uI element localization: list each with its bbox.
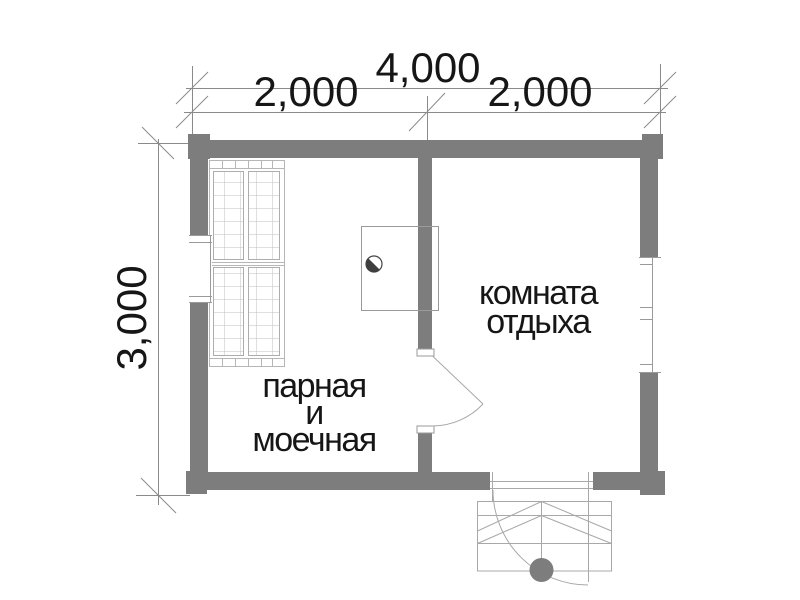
log-corner-bottom-right <box>640 471 665 495</box>
interior-door-swing-arc <box>433 404 484 426</box>
bench-panel <box>214 172 244 260</box>
log-corner-top-right <box>642 134 663 159</box>
bench-panel <box>214 268 244 356</box>
stove-marker-icon <box>366 256 382 272</box>
window-left <box>189 235 212 303</box>
dim-overall-width: 4,000 <box>375 44 480 91</box>
window-right <box>639 257 661 373</box>
bench-slats <box>210 161 285 367</box>
outer-wall-bottom-left <box>190 472 490 490</box>
door-jamb-bottom <box>417 426 434 433</box>
floor-plan-canvas: 4,000 2,000 2,000 3,000 <box>0 0 800 600</box>
interior-wall-upper <box>418 158 432 349</box>
door-jamb-top <box>417 349 434 356</box>
outer-wall-left-lower <box>190 303 208 490</box>
dim-right-bay: 2,000 <box>487 68 592 115</box>
interior-door-leaf <box>433 356 484 404</box>
porch-post-icon <box>530 558 554 582</box>
dim-left-bay: 2,000 <box>253 68 358 115</box>
entrance <box>478 472 612 585</box>
log-corner-top-left <box>188 134 210 159</box>
label-rest-room-line2: отдыха <box>486 303 591 341</box>
outer-wall-top <box>190 140 658 158</box>
floor-plan-drawing: 4,000 2,000 2,000 3,000 <box>0 0 800 600</box>
dim-depth: 3,000 <box>108 265 155 370</box>
interior-door <box>417 349 483 433</box>
bench-panel <box>249 172 280 260</box>
interior-wall-lower <box>418 433 432 472</box>
log-corner-bottom-left <box>186 471 207 494</box>
bench-panel <box>249 268 280 356</box>
label-steam-washing-line3: моечная <box>252 421 375 459</box>
